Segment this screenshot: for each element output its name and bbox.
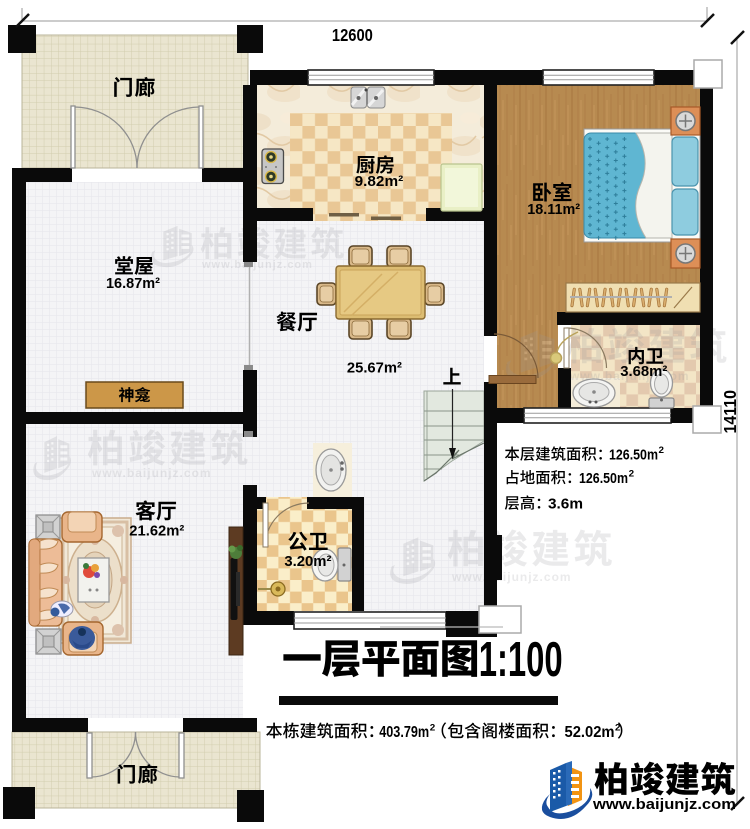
svg-text:403.79m: 403.79m — [379, 724, 429, 741]
svg-text:2: 2 — [430, 723, 436, 734]
svg-text:3.6m: 3.6m — [548, 497, 583, 513]
svg-text:9.82m²: 9.82m² — [355, 173, 404, 190]
svg-text:www.baijunjz.com: www.baijunjz.com — [451, 570, 572, 584]
svg-text:14110: 14110 — [720, 390, 740, 434]
svg-text:2: 2 — [629, 468, 635, 479]
svg-text:12600: 12600 — [332, 25, 373, 45]
svg-text:18.11m²: 18.11m² — [527, 201, 580, 218]
svg-text:3.20m²: 3.20m² — [284, 553, 331, 570]
svg-text:www.baijunjz.com: www.baijunjz.com — [91, 466, 212, 480]
svg-text:2: 2 — [659, 445, 665, 456]
svg-text:3.68m²: 3.68m² — [620, 363, 667, 380]
svg-text:126.50m: 126.50m — [609, 448, 658, 464]
svg-text:21.62m²: 21.62m² — [129, 523, 184, 540]
svg-text:www.baijunjz.com: www.baijunjz.com — [592, 796, 736, 813]
svg-text:1:100: 1:100 — [479, 633, 563, 687]
svg-text:126.50m: 126.50m — [579, 471, 628, 487]
svg-text:25.67m²: 25.67m² — [347, 360, 402, 377]
svg-text:16.87m²: 16.87m² — [106, 275, 160, 292]
svg-text:52.02m: 52.02m — [565, 724, 615, 741]
